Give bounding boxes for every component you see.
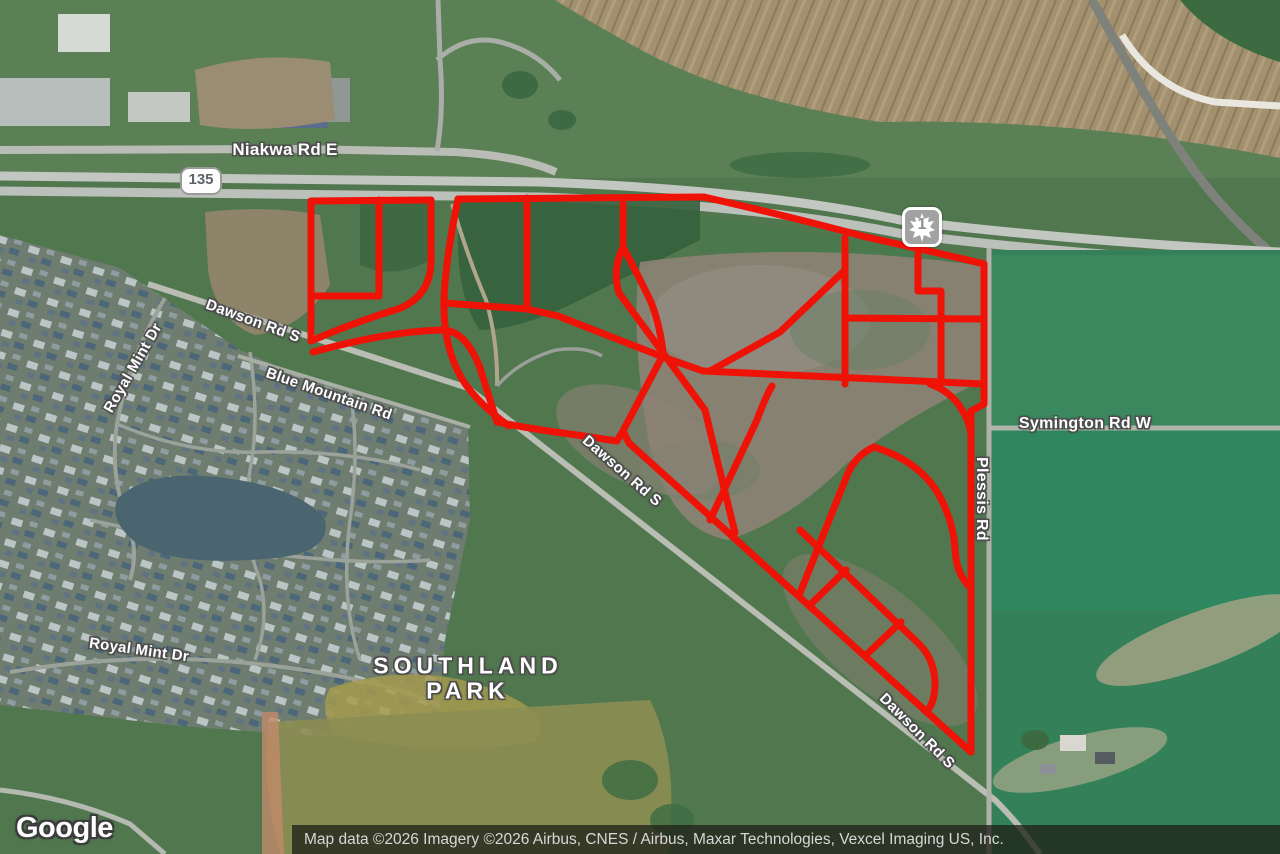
place-label-southland-line1: SOUTHLAND xyxy=(373,654,562,679)
attribution-bar[interactable]: Map data ©2026 Imagery ©2026 Airbus, CNE… xyxy=(292,825,1280,854)
map-canvas[interactable]: Niakwa Rd E Dawson Rd S Royal Mint Dr Bl… xyxy=(0,0,1280,854)
google-logo[interactable]: Google xyxy=(16,812,113,845)
route-shield-trans-canada-1: 1 xyxy=(902,207,942,247)
road-label-symington-rd-w: Symington Rd W xyxy=(1019,415,1151,433)
place-label-southland-park: SOUTHLAND PARK xyxy=(373,654,562,705)
place-label-southland-line2: PARK xyxy=(373,679,562,704)
road-label-niakwa-rd-e: Niakwa Rd E xyxy=(232,140,337,160)
route-shield-135: 135 xyxy=(180,167,222,195)
route-shield-number: 1 xyxy=(905,216,939,234)
road-label-plessis-rd: Plessis Rd xyxy=(972,457,990,541)
